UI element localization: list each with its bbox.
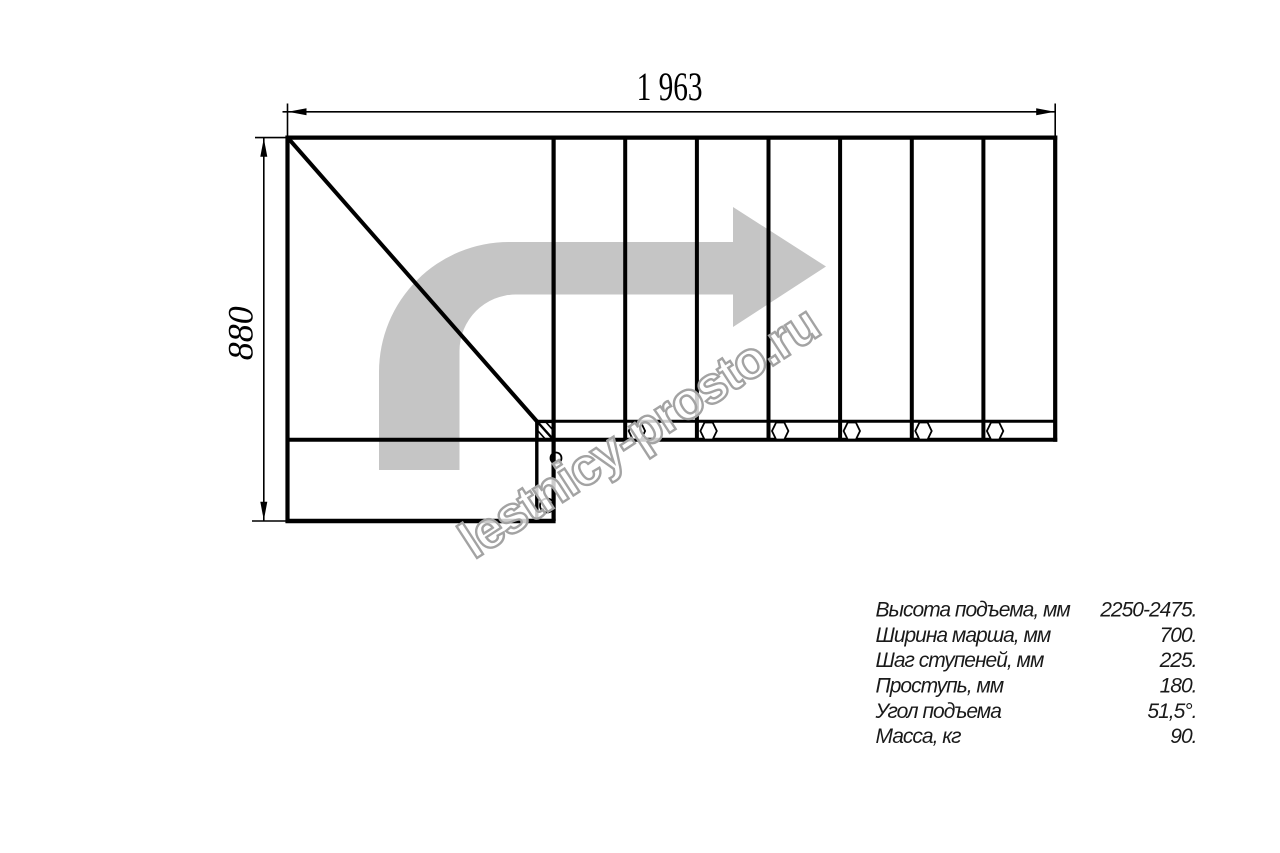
svg-text:180.: 180. — [1160, 675, 1197, 698]
svg-text:Шаг ступеней, мм: Шаг ступеней, мм — [876, 649, 1044, 672]
svg-text:Ширина марша, мм: Ширина марша, мм — [876, 624, 1051, 647]
svg-text:Угол подъема: Угол подъема — [875, 700, 1002, 723]
svg-text:225.: 225. — [1159, 649, 1197, 672]
svg-text:700.: 700. — [1160, 624, 1197, 647]
svg-text:Высота подъема, мм: Высота подъема, мм — [876, 599, 1071, 622]
svg-text:Масса, кг: Масса, кг — [876, 725, 962, 748]
svg-text:1 963: 1 963 — [637, 64, 703, 109]
svg-text:90.: 90. — [1170, 725, 1196, 748]
svg-text:51,5°.: 51,5°. — [1147, 700, 1196, 723]
svg-text:Проступь, мм: Проступь, мм — [876, 675, 1004, 698]
svg-text:2250-2475.: 2250-2475. — [1099, 599, 1196, 622]
svg-text:880: 880 — [221, 306, 261, 360]
